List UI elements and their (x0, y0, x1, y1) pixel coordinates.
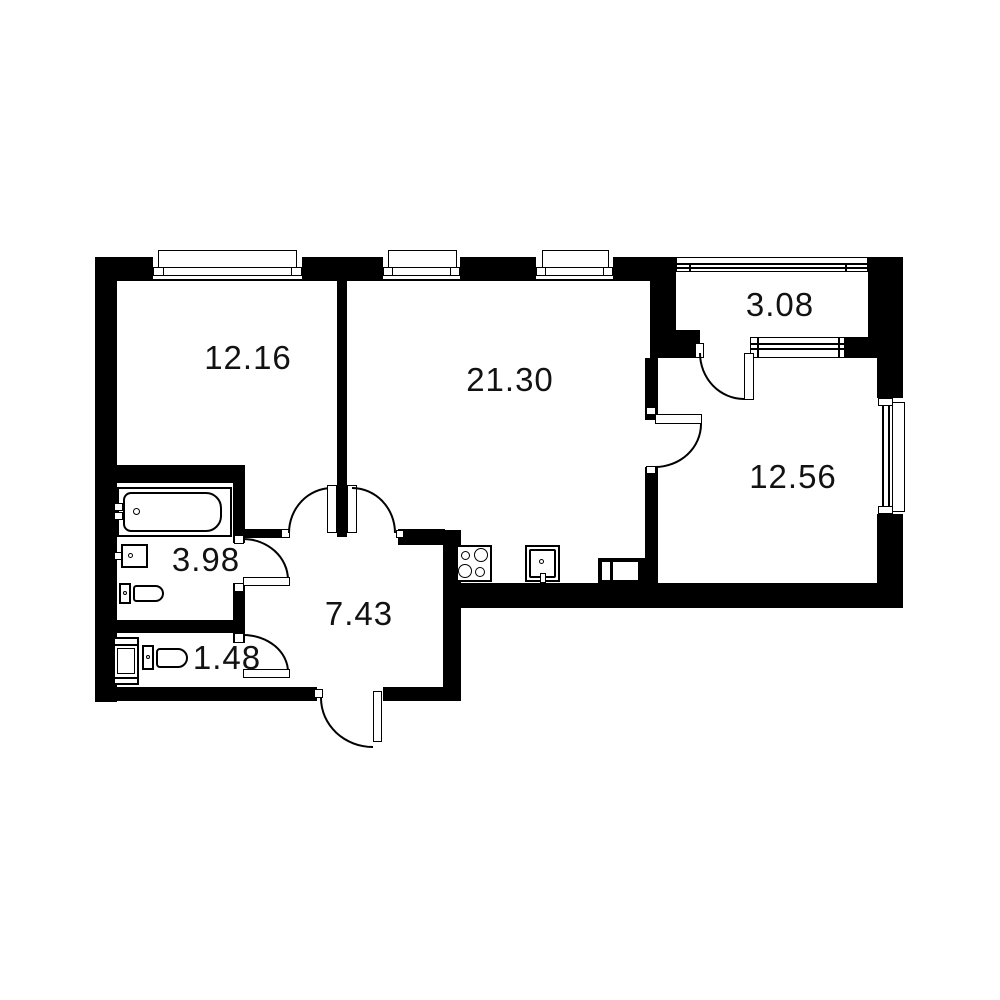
wall-bottom-hall (95, 687, 461, 701)
balcony-glazing (676, 257, 868, 272)
door-bedroom-2-arc (655, 424, 702, 468)
kitchen-sink-tap (540, 573, 546, 583)
label-bathroom-area: 3.98 (131, 542, 281, 578)
window-bedroom-cap-right (291, 267, 302, 276)
wall-top-c (460, 257, 536, 281)
entrance-jamb-left (314, 689, 323, 698)
window-living-2-inner-line (536, 279, 613, 281)
floor-plan: 12.16 21.30 3.08 12.56 3.98 7.43 1.48 (0, 0, 1000, 1000)
door-bathroom-leaf (243, 577, 290, 586)
label-living-area: 21.30 (435, 362, 585, 398)
wall-top-b (302, 257, 383, 281)
balcony-window-line-1 (750, 343, 845, 345)
entrance-door-leaf (373, 691, 382, 742)
washing-machine-line-top (115, 644, 137, 646)
window-living-1-cap-right (450, 267, 460, 276)
vent-duct-slot-1 (602, 562, 610, 580)
bathroom-toilet-dot (123, 591, 127, 595)
window-living-1-inner-line (383, 279, 460, 281)
window-living-1-cap-left (383, 267, 393, 276)
window-bedroom-2-cap-bottom (878, 506, 893, 514)
balcony-glazing-line-1 (676, 263, 868, 265)
door-bedroom-arc (288, 487, 332, 533)
label-bedroom-area: 12.16 (173, 340, 323, 376)
window-living-1-frame (383, 267, 460, 276)
window-bedroom-2-sill (892, 402, 905, 512)
wall-top-d (613, 257, 676, 281)
door-bedroom-leaf (327, 485, 337, 533)
window-bedroom-cap-left (153, 267, 164, 276)
bathtub-drain-dot (133, 508, 140, 515)
balcony-window-line-2 (750, 348, 845, 350)
balcony-glazing-tick-left (689, 263, 691, 272)
bathtub-tap-2 (114, 512, 123, 520)
balcony-glazing-tick-right (845, 263, 847, 272)
window-bedroom-2-line-1 (882, 398, 884, 514)
washing-machine-line-bottom (115, 677, 137, 679)
entrance-door-arc (320, 698, 373, 748)
stove-burner-tl (461, 551, 470, 560)
window-living-2-cap-right (603, 267, 613, 276)
bathtub-tap-1 (114, 503, 123, 511)
vent-duct-slot-2 (613, 562, 638, 580)
label-balcony-area: 3.08 (705, 287, 855, 323)
wall-bath-wc-divider (108, 620, 245, 633)
window-living-2-frame (536, 267, 613, 276)
wall-right-balcony (868, 257, 877, 358)
stove-burner-bl (458, 564, 472, 578)
door-balcony-leaf (744, 353, 754, 400)
stove-burner-br (475, 567, 485, 577)
washing-machine-inner (117, 648, 135, 674)
wall-bath-top (113, 465, 243, 483)
window-bedroom-inner-line (153, 279, 302, 281)
balcony-window-tick-right (838, 337, 840, 358)
window-living-2-cap-left (536, 267, 546, 276)
door-living-jamb (396, 530, 404, 538)
wall-bedroom-living (337, 281, 347, 537)
balcony-glazing-line-2 (676, 267, 868, 269)
bathroom-sink-tap (114, 552, 122, 560)
kitchen-sink-dot (539, 559, 544, 564)
window-bedroom-2-line-2 (888, 398, 890, 514)
wall-bottom-kitchen (443, 583, 903, 608)
label-hallway-area: 7.43 (284, 596, 434, 632)
door-balcony-arc (699, 353, 744, 400)
door-bedroom-2-leaf (655, 414, 702, 424)
wall-balcony-bottom-right (845, 337, 868, 358)
bathroom-toilet-bowl (133, 585, 164, 602)
wall-balcony-corner (650, 330, 700, 358)
wc-toilet-dot (146, 655, 150, 659)
window-bedroom-frame (153, 267, 302, 276)
window-bedroom-2-cap-top (878, 398, 893, 406)
balcony-window-tick-left (757, 337, 759, 358)
label-wc-area: 1.48 (152, 640, 302, 676)
door-living-arc (352, 487, 396, 533)
stove-burner-tr (474, 548, 488, 562)
label-bedroom-2-area: 12.56 (718, 459, 868, 495)
wall-hall-top-right (398, 529, 445, 545)
